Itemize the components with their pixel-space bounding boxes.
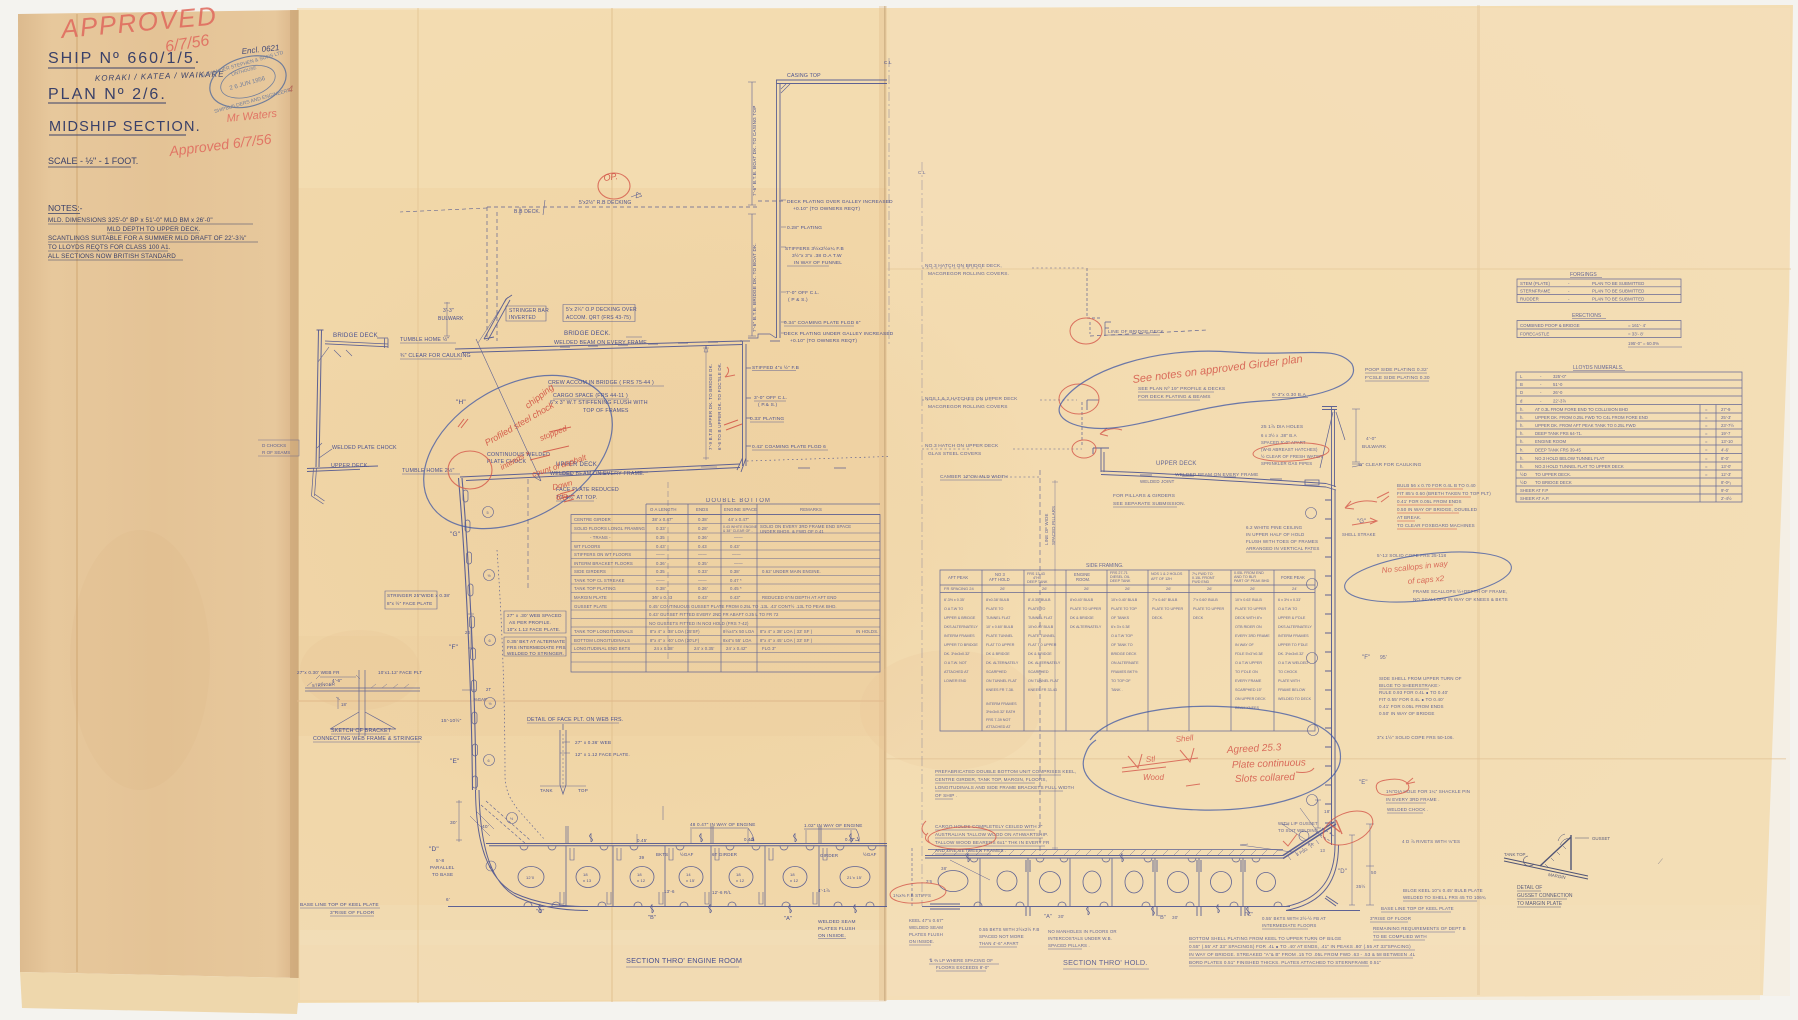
svg-text:SPRINKLER GAS PIPES: SPRINKLER GAS PIPES	[1261, 461, 1312, 466]
svg-text:NOS 1 & 2 HATCHES ON UPPER: NOS 1 & 2 HATCHES ON UPPER DECK	[925, 396, 1018, 402]
svg-text:SHELL STRAKE: SHELL STRAKE	[1342, 532, 1376, 537]
svg-text:GIRDER: GIRDER	[820, 853, 838, 858]
svg-text:4'-0": 4'-0"	[1366, 436, 1376, 442]
svg-text:½GAF: ½GAF	[863, 852, 877, 857]
svg-text:0.47': 0.47'	[845, 837, 855, 842]
svg-text:TOP OF FRAMES: TOP OF FRAMES	[583, 408, 629, 414]
svg-text:h.: h.	[1520, 464, 1524, 469]
svg-text:8"x 4" x .38' LOA (35'SF): 8"x 4" x .38' LOA (35'SF)	[650, 629, 700, 634]
svg-text:NOTES:-: NOTES:-	[48, 203, 83, 213]
svg-text:PLATE TUNNEL: PLATE TUNNEL	[986, 634, 1013, 638]
svg-text:REMARKS: REMARKS	[800, 507, 822, 512]
svg-text:10'x 0.40' BULB: 10'x 0.40' BULB	[1111, 598, 1138, 602]
svg-text:10'x1.12' FACE PLT: 10'x1.12' FACE PLT	[378, 670, 422, 675]
svg-text:h.: h.	[1520, 423, 1524, 428]
svg-text:TANK TOP CL STREAKE: TANK TOP CL STREAKE	[574, 578, 625, 583]
svg-text:EVERY 3RD FRAME: EVERY 3RD FRAME	[1235, 634, 1270, 638]
svg-text:UPPER & BRIDGE: UPPER & BRIDGE	[944, 616, 976, 620]
svg-text:TOP: TOP	[578, 788, 588, 793]
svg-text:DEEP TANK FRS 64-71.: DEEP TANK FRS 64-71.	[1535, 431, 1582, 436]
svg-text:18': 18'	[1324, 809, 1330, 814]
svg-text:6'.3½ x 0.35': 6'.3½ x 0.35'	[944, 598, 965, 602]
svg-text:DOUBLE BOTTOM: DOUBLE BOTTOM	[706, 498, 771, 504]
svg-text:BULWARK: BULWARK	[438, 316, 464, 322]
svg-text:CAMBER 12"ON MLD WIDTH: CAMBER 12"ON MLD WIDTH	[940, 474, 1008, 480]
svg-text:AT 0.3L FROM FORE END TO C: AT 0.3L FROM FORE END TO COLLISION BHD	[1535, 407, 1628, 412]
svg-text:0.55' BKTS WITH 2½-½ FB AT: 0.55' BKTS WITH 2½-½ FB AT	[1262, 916, 1326, 921]
svg-text:STIFFERS ON WT FLOORS: STIFFERS ON WT FLOORS	[574, 552, 631, 557]
svg-text:TO F'DLE ON: TO F'DLE ON	[1235, 670, 1258, 674]
svg-text:30': 30'	[450, 820, 457, 826]
svg-text:FLAT TO UPPER: FLAT TO UPPER	[1028, 643, 1057, 647]
svg-text:ENDS: ENDS	[696, 507, 708, 512]
svg-text:UNDER BHDS. & FWD OF 0.41: UNDER BHDS. & FWD OF 0.41	[760, 529, 824, 534]
svg-text:FLOORS EXCEEDS 8'-0": FLOORS EXCEEDS 8'-0"	[936, 965, 990, 970]
svg-text:MIDSHIP SECTION.: MIDSHIP SECTION.	[49, 119, 201, 135]
svg-text:SHEER AT A.P.: SHEER AT A.P.	[1520, 496, 1549, 501]
svg-text:+0.10" (TO OWNERS REQT): +0.10" (TO OWNERS REQT)	[793, 206, 860, 212]
svg-text:26': 26'	[1042, 586, 1047, 591]
svg-text:"F": "F"	[1362, 655, 1370, 661]
svg-text:8"x ½" FACE PLATE: 8"x ½" FACE PLATE	[387, 600, 432, 606]
svg-text:0.55" (.55' AT 33" SPACINGS): 0.55" (.55' AT 33" SPACINGS) FOR .4L ∎ T…	[1189, 944, 1411, 949]
svg-text:0.28': 0.28'	[698, 526, 708, 531]
svg-text:SHIP Nº 660/1/5.: SHIP Nº 660/1/5.	[48, 50, 201, 67]
svg-text:INVERTED: INVERTED	[509, 315, 536, 321]
svg-text:CONNECTING WEB FRAME & STRINGE: CONNECTING WEB FRAME & STRINGER	[313, 736, 422, 742]
svg-text:TANK .: TANK .	[1111, 688, 1123, 692]
svg-text:21'x 15': 21'x 15'	[847, 875, 862, 880]
svg-text:TANK: TANK	[540, 788, 553, 793]
svg-text:STIFFERS 3½x2½x¼ F.B: STIFFERS 3½x2½x¼ F.B	[785, 245, 844, 252]
svg-text:BASE LINE TOP OF KEEL PLATE: BASE LINE TOP OF KEEL PLATE	[1381, 906, 1454, 911]
svg-text:PLATE TO UPPER: PLATE TO UPPER	[1070, 607, 1101, 611]
svg-text:KNEES FR 33-43: KNEES FR 33-43	[1028, 688, 1057, 692]
svg-text:= 161'- 4': = 161'- 4'	[1628, 323, 1646, 328]
svg-text:CASING TOP: CASING TOP	[787, 73, 821, 79]
svg-text:24 x 0.38': 24 x 0.38'	[654, 646, 674, 651]
svg-text:FRS 7-39 NOT: FRS 7-39 NOT	[986, 718, 1011, 722]
svg-text:BORD PLATES 0.51" FINISHED: BORD PLATES 0.51" FINISHED THICKS. PLATE…	[1189, 960, 1381, 965]
svg-text:4: 4	[288, 84, 293, 94]
svg-text:18: 18	[583, 872, 588, 877]
svg-text:EVERY FRAME: EVERY FRAME	[1235, 679, 1262, 683]
svg-text:PLATE TO UPPER: PLATE TO UPPER	[1235, 607, 1266, 611]
svg-text:0.43' GUSSET FITTED EVERY: 0.43' GUSSET FITTED EVERY 2ND FR ABAFT 0…	[649, 612, 779, 617]
svg-text:½GAF: ½GAF	[680, 852, 694, 857]
svg-text:h.: h.	[1520, 448, 1524, 453]
svg-text:SPACED NOT MORE: SPACED NOT MORE	[979, 934, 1024, 939]
svg-text:WELDED SEAM: WELDED SEAM	[909, 925, 943, 930]
svg-text:WELDED BEAM ON EVERY FRAME: WELDED BEAM ON EVERY FRAME	[1175, 472, 1258, 478]
svg-text:0.41' FOR 0.05L FROM ENDS: 0.41' FOR 0.05L FROM ENDS	[1379, 704, 1444, 709]
svg-text:"E": "E"	[450, 758, 460, 765]
svg-text:BOTTOM SHELL PLATING FROM K: BOTTOM SHELL PLATING FROM KEEL TO UPPER …	[1189, 936, 1341, 941]
svg-text:NO SCALLOPS IN WAY OF KNEES &: NO SCALLOPS IN WAY OF KNEES & BKTS	[1413, 597, 1508, 602]
svg-text:O A T.W TO: O A T.W TO	[944, 607, 963, 611]
svg-text:WELDED BEAM ON EVERY FRAME: WELDED BEAM ON EVERY FRAME.	[554, 340, 649, 346]
svg-text:DECK PLATING UNDER GALLEY INCR: DECK PLATING UNDER GALLEY INCREASED	[784, 331, 894, 337]
svg-text:0.36': 0.36'	[656, 561, 666, 566]
svg-text:14: 14	[686, 872, 691, 877]
svg-text:GUSSET CONNECTION: GUSSET CONNECTION	[1517, 893, 1573, 899]
svg-text:C.L: C.L	[918, 170, 926, 175]
svg-text:5'x2½" R.B DECKING: 5'x2½" R.B DECKING	[579, 199, 631, 206]
svg-text:ON INSIDE.: ON INSIDE.	[909, 939, 934, 944]
svg-text:40': 40'	[482, 824, 489, 830]
svg-text:GUSSET PLATE: GUSSET PLATE	[574, 604, 607, 609]
svg-text:18: 18	[736, 872, 741, 877]
svg-text:REDUCED 6"IN DEPTH AT AFT EN: REDUCED 6"IN DEPTH AT AFT END	[762, 595, 837, 600]
svg-text:22'-3⅞: 22'-3⅞	[1553, 399, 1566, 404]
svg-text:0.40': 0.40'	[744, 837, 754, 842]
svg-text:26': 26'	[1125, 586, 1130, 591]
svg-text:= 33'- 8': = 33'- 8'	[1628, 332, 1644, 337]
svg-text:3"x 1½" SOLID COPE FRS 50-: 3"x 1½" SOLID COPE FRS 50-106.	[1377, 734, 1454, 740]
svg-text:8x4"x 55' LOA: 8x4"x 55' LOA	[723, 638, 752, 643]
svg-text:"A": "A"	[1044, 914, 1052, 920]
svg-text:DECK.: DECK.	[1152, 616, 1163, 620]
svg-text:30': 30'	[1172, 915, 1178, 920]
svg-text:6 x 3½ x .38" B.A: 6 x 3½ x .38" B.A	[1261, 433, 1297, 438]
svg-text:SEE PLAN Nº 19" PROFILE & DECK: SEE PLAN Nº 19" PROFILE & DECKS	[1138, 386, 1225, 392]
svg-text:——: ——	[698, 552, 707, 557]
svg-text:——: ——	[734, 535, 743, 540]
svg-text:O A LENGTH: O A LENGTH	[650, 507, 677, 512]
svg-text:PLATES FLUSH: PLATES FLUSH	[909, 932, 943, 937]
svg-text:TANK TOP PLATING: TANK TOP PLATING	[574, 586, 616, 591]
svg-text:INTERM BRACKET FLOORS: INTERM BRACKET FLOORS	[574, 561, 633, 566]
svg-text:8"x 4" x 45' LOA ( 33' SF ): 8"x 4" x 45' LOA ( 33' SF )	[760, 638, 813, 643]
svg-text:——: ——	[698, 578, 707, 583]
svg-text:STEM (PLATE): STEM (PLATE)	[1520, 281, 1550, 286]
svg-text:95': 95'	[1380, 655, 1387, 661]
svg-text:3"RISE OF FLOOR: 3"RISE OF FLOOR	[1370, 916, 1412, 921]
svg-text:6: 6	[488, 759, 490, 763]
svg-text:GLAS STEEL COVERS: GLAS STEEL COVERS	[928, 451, 981, 457]
svg-text:0.43': 0.43'	[656, 544, 666, 549]
svg-text:Wood: Wood	[1143, 773, 1164, 782]
svg-text:UPPER & F'DLE: UPPER & F'DLE	[1278, 616, 1306, 620]
svg-text:OF TANKS: OF TANKS	[1111, 616, 1130, 620]
svg-text:FRAME SCALLOPS ½+DEPTH OF FRA: FRAME SCALLOPS ½+DEPTH OF FRAME,	[1413, 588, 1507, 594]
svg-text:SCARPHED 15": SCARPHED 15"	[1235, 688, 1263, 692]
svg-text:IN HOLDS.: IN HOLDS.	[856, 629, 878, 634]
svg-text:0.62' UNDER MAIN ENGINE.: 0.62' UNDER MAIN ENGINE.	[762, 569, 821, 574]
svg-text:D CHOCKS: D CHOCKS	[262, 443, 286, 448]
svg-text:51'-0: 51'-0	[1553, 382, 1563, 387]
svg-text:+0.10" (TO OWNERS REQT): +0.10" (TO OWNERS REQT)	[790, 338, 857, 344]
svg-text:LINE OF WIDE: LINE OF WIDE	[1044, 513, 1049, 545]
svg-text:0.45 *: 0.45 *	[730, 586, 742, 591]
svg-text:SEE SEPARATE SUBMISSION.: SEE SEPARATE SUBMISSION.	[1113, 501, 1185, 507]
svg-text:& 38" CLEAR OF -: & 38" CLEAR OF -	[723, 529, 753, 533]
svg-text:12" x 1.12 FACE PLATE.: 12" x 1.12 FACE PLATE.	[575, 752, 630, 757]
svg-text:8½x4"x 50 LOA: 8½x4"x 50 LOA	[723, 629, 754, 634]
svg-text:0.43": 0.43"	[730, 595, 741, 600]
svg-text:"C": "C"	[1245, 912, 1253, 918]
svg-text:STIFFED 4"x ½" F.B: STIFFED 4"x ½" F.B	[752, 364, 799, 371]
svg-text:0.34" COAMING PLATE FLGD 6": 0.34" COAMING PLATE FLGD 6"	[784, 320, 861, 326]
svg-text:PLATE TO: PLATE TO	[1028, 607, 1046, 611]
svg-text:INTERMEDIATE FLOORS: INTERMEDIATE FLOORS	[1262, 923, 1316, 928]
svg-text:NO.3 HOLD BELOW TUNNEL FLAT: NO.3 HOLD BELOW TUNNEL FLAT	[1535, 456, 1605, 461]
svg-text:TO UPPER DECK.: TO UPPER DECK.	[1535, 472, 1571, 477]
svg-text:PLAN TO BE SUBMITTED: PLAN TO BE SUBMITTED	[1592, 289, 1644, 294]
svg-text:FORE PEAK: FORE PEAK	[1281, 575, 1305, 580]
svg-text:0.35': 0.35'	[698, 561, 708, 566]
svg-text:PLATE WITH: PLATE WITH	[1278, 679, 1300, 683]
svg-text:LONGITUDINALS AND SIDE FRAM: LONGITUDINALS AND SIDE FRAME BRACKETS FU…	[935, 785, 1074, 790]
svg-text:MARGIN PLATE: MARGIN PLATE	[574, 595, 607, 600]
svg-text:0.36': 0.36'	[698, 535, 708, 540]
svg-text:BULB 56 x 0.70 FOR 0.4L B TO: BULB 56 x 0.70 FOR 0.4L B TO 0.40	[1397, 483, 1476, 488]
svg-text:27" x .30' WEB SPACED: 27" x .30' WEB SPACED	[507, 613, 562, 618]
svg-text:LLOYDS NUMERALS.: LLOYDS NUMERALS.	[1573, 365, 1623, 371]
svg-text:x 12: x 12	[790, 878, 799, 883]
svg-text:AFT HOLD: AFT HOLD	[989, 577, 1010, 582]
svg-text:ARRANGED IN VERTICAL PATES: ARRANGED IN VERTICAL PATES	[1246, 546, 1320, 551]
svg-text:½D: ½D	[1520, 472, 1527, 477]
svg-text:——: ——	[732, 552, 741, 557]
svg-text:DEEP TANK FRS 39-45: DEEP TANK FRS 39-45	[1535, 448, 1581, 453]
svg-text:x 13: x 13	[583, 878, 592, 883]
svg-text:25'-3': 25'-3'	[1721, 415, 1731, 420]
svg-text:TO CHOCK: TO CHOCK	[1278, 670, 1298, 674]
svg-text:ATTACHED AT: ATTACHED AT	[944, 670, 969, 674]
svg-text:ON UPPER DECK: ON UPPER DECK	[1235, 697, 1266, 701]
svg-text:38' x 0.47": 38' x 0.47"	[652, 517, 673, 522]
svg-text:STRINGER BAR: STRINGER BAR	[509, 308, 549, 314]
svg-text:OF SHIP .: OF SHIP .	[935, 793, 957, 798]
svg-text:ACCOM. QRT (FRS 43-75): ACCOM. QRT (FRS 43-75)	[566, 315, 631, 321]
svg-text:IN WAY OF BRIDGE. STREAKED: IN WAY OF BRIDGE. STREAKED "A"& B" FROM …	[1189, 952, 1416, 957]
svg-text:THAN 4'-6" APART: THAN 4'-6" APART	[979, 941, 1019, 946]
svg-text:WELDED SEAM: WELDED SEAM	[818, 919, 856, 925]
svg-text:0.43': 0.43'	[730, 544, 740, 549]
svg-text:SCALE - ½" - 1 FOOT.: SCALE - ½" - 1 FOOT.	[48, 156, 138, 166]
svg-text:FORGINGS: FORGINGS	[1570, 272, 1597, 278]
svg-text:STRINGER 25"WIDE x 0.38': STRINGER 25"WIDE x 0.38'	[387, 593, 450, 598]
svg-text:KEEL 47"x 0.67": KEEL 47"x 0.67"	[909, 918, 944, 923]
svg-text:FOR DECK PLATING & BEAMS: FOR DECK PLATING & BEAMS	[1138, 394, 1211, 400]
svg-text:WELDED PLATE CHOCK: WELDED PLATE CHOCK	[332, 445, 397, 451]
svg-text:POOP SIDE PLATING 0.32': POOP SIDE PLATING 0.32'	[1365, 367, 1428, 373]
svg-text:IN EVERY 3RD FRAME .: IN EVERY 3RD FRAME .	[1386, 797, 1440, 802]
svg-text:DKS ALTERNATELY: DKS ALTERNATELY	[1278, 625, 1312, 629]
svg-text:5: 5	[487, 511, 489, 515]
svg-text:AFT OF 12H: AFT OF 12H	[1151, 577, 1172, 581]
svg-text:TO SUIT WELDING: TO SUIT WELDING	[1278, 828, 1319, 833]
svg-text:TO BASE: TO BASE	[432, 872, 453, 877]
svg-text:O A T.W TOP: O A T.W TOP	[1111, 634, 1133, 638]
svg-text:39: 39	[639, 855, 645, 860]
svg-text:CENTRE GIRDER: CENTRE GIRDER	[574, 517, 611, 522]
svg-text:"D": "D"	[429, 846, 439, 853]
svg-text:6T GIRDER: 6T GIRDER	[712, 852, 737, 857]
svg-text:0.42' COAMING PLATE FLGD 6: 0.42' COAMING PLATE FLGD 6	[752, 444, 826, 450]
svg-text:ON ALTERNATE: ON ALTERNATE	[1111, 661, 1139, 665]
svg-text:SCARPHED: SCARPHED	[1028, 670, 1049, 674]
svg-text:0.38': 0.38'	[656, 586, 666, 591]
svg-text:10'x0.40' BULB: 10'x0.40' BULB	[1028, 625, 1054, 629]
svg-text:O A T.W TO: O A T.W TO	[1278, 607, 1297, 611]
svg-text:"G": "G"	[450, 531, 461, 538]
svg-text:0.28" PLATING: 0.28" PLATING	[787, 225, 822, 231]
svg-text:8'x0.38' BULB: 8'x0.38' BULB	[986, 598, 1010, 602]
svg-text:5'-12 SOLID COPE FRS 25-11: 5'-12 SOLID COPE FRS 25-118	[1377, 553, 1446, 558]
svg-text:WELDED TO STRINGER.: WELDED TO STRINGER.	[507, 651, 564, 656]
svg-text:DETAIL OF: DETAIL OF	[1517, 885, 1542, 891]
svg-text:0.50 IN WAY OF BRIDGE, DOUBLE: 0.50 IN WAY OF BRIDGE, DOUBLED	[1397, 507, 1478, 512]
svg-text:7"x 0.60' BULB: 7"x 0.60' BULB	[1193, 598, 1218, 602]
svg-text:IN WAY OF FUNNEL: IN WAY OF FUNNEL	[794, 260, 842, 266]
svg-text:195'-0" = 60.0%: 195'-0" = 60.0%	[1628, 341, 1659, 346]
svg-text:35½: 35½	[1356, 883, 1365, 889]
svg-text:3½x3x0.32' EATH: 3½x3x0.32' EATH	[986, 710, 1016, 714]
svg-text:DKS ALTERNATELY: DKS ALTERNATELY	[944, 625, 978, 629]
svg-text:3'-0" OFF C.L.: 3'-0" OFF C.L.	[754, 395, 787, 401]
svg-text:Shell: Shell	[1175, 733, 1194, 744]
svg-text:FR SPACING 24: FR SPACING 24	[944, 586, 974, 591]
svg-text:DK. ALTERNATELY: DK. ALTERNATELY	[986, 661, 1019, 665]
svg-text:INTERM FRAMES: INTERM FRAMES	[1278, 634, 1309, 638]
svg-text:27" x 0.36' WEB: 27" x 0.36' WEB	[575, 740, 611, 745]
svg-text:6 x 3½ x 0.33': 6 x 3½ x 0.33'	[1278, 598, 1301, 602]
svg-text:PLAN TO BE SUBMITTED: PLAN TO BE SUBMITTED	[1592, 296, 1644, 301]
svg-text:LINE OF BRIDGE DECK: LINE OF BRIDGE DECK	[1108, 329, 1165, 335]
svg-text:R OF SEAMS: R OF SEAMS	[262, 450, 290, 455]
svg-text:ATTACHED AT: ATTACHED AT	[986, 725, 1011, 729]
svg-text:24' x 0.42": 24' x 0.42"	[726, 646, 747, 651]
svg-text:OP.: OP.	[603, 171, 619, 183]
svg-text:26'-0: 26'-0	[1553, 390, 1563, 395]
svg-text:13'-6: 13'-6	[664, 889, 675, 894]
svg-text:SECTION THRO' ENGINE ROOM: SECTION THRO' ENGINE ROOM	[626, 956, 742, 965]
svg-text:CARGO SPACE (FRS 44-11 ): CARGO SPACE (FRS 44-11 )	[553, 393, 628, 399]
svg-text:PLATE TO UPPER: PLATE TO UPPER	[1152, 607, 1183, 611]
svg-text:0.45': 0.45'	[637, 838, 647, 843]
svg-text:SIDE SHELL FROM UPPER TURN O: SIDE SHELL FROM UPPER TURN OF	[1379, 676, 1462, 681]
svg-text:AT BREAK.: AT BREAK.	[1397, 515, 1421, 520]
svg-text:0.33': 0.33'	[698, 569, 708, 574]
svg-text:h.: h.	[1520, 456, 1524, 461]
svg-text:18': 18'	[341, 702, 347, 707]
svg-text:0.35: 0.35	[656, 535, 665, 540]
svg-text:24: 24	[465, 630, 471, 635]
svg-text:38': 38'	[941, 866, 947, 871]
svg-text:8'-0.35' BULB: 8'-0.35' BULB	[1028, 598, 1051, 602]
svg-text:4 D ⅞ RIVETS WITH ⅛"ES: 4 D ⅞ RIVETS WITH ⅛"ES	[1402, 839, 1460, 844]
svg-text:48 0.47" IN WAY OF ENGINE: 48 0.47" IN WAY OF ENGINE	[690, 822, 756, 827]
svg-text:SIDE FRAMING.: SIDE FRAMING.	[1086, 563, 1124, 569]
svg-text:26': 26'	[1166, 586, 1171, 591]
svg-text:8'x0.40' BULB: 8'x0.40' BULB	[1070, 598, 1094, 602]
svg-text:MLD. DIMENSIONS 325'-0" BP x 5: MLD. DIMENSIONS 325'-0" BP x 51'-0" MLD …	[48, 217, 213, 224]
svg-text:50: 50	[1371, 870, 1377, 875]
svg-text:h.: h.	[1520, 431, 1524, 436]
svg-text:BILGE KEEL 10"x 0.45' BULB PL: BILGE KEEL 10"x 0.45' BULB PLATE	[1403, 888, 1483, 893]
svg-text:TANK TOP: TANK TOP	[1504, 852, 1526, 857]
svg-text:26': 26'	[1000, 586, 1005, 591]
svg-text:DK & BRIDGE: DK & BRIDGE	[1028, 652, 1052, 656]
svg-text:"D": "D"	[1338, 869, 1347, 875]
svg-text:PLATE TO TOP: PLATE TO TOP	[1111, 607, 1137, 611]
svg-text:AFT PEAK: AFT PEAK	[948, 575, 968, 580]
svg-text:13: 13	[1320, 848, 1325, 853]
svg-text:FOR PILLARS & GIRDERS: FOR PILLARS & GIRDERS	[1113, 493, 1175, 499]
svg-text:LOWER END: LOWER END	[944, 679, 967, 683]
svg-text:SHEER AT F.P: SHEER AT F.P	[1520, 488, 1548, 493]
svg-text:8"x 4" x .40' LOA (30'LF): 8"x 4" x .40' LOA (30'LF)	[650, 638, 700, 643]
svg-text:26': 26'	[1207, 586, 1212, 591]
svg-text:TO MARGIN PLATE: TO MARGIN PLATE	[1517, 901, 1563, 907]
svg-text:FR: FR	[1308, 842, 1314, 847]
svg-text:AUSTRALIAN TALLOW WOOD ON: AUSTRALIAN TALLOW WOOD ON ATHWARTSHIP.	[935, 832, 1048, 837]
svg-text:RULE 0.93 FOR 0.4L ∎ TO 0.4: RULE 0.93 FOR 0.4L ∎ TO 0.40'	[1379, 690, 1448, 695]
svg-text:0.35: 0.35	[656, 569, 665, 574]
svg-text:½D: ½D	[1520, 480, 1527, 485]
svg-text:10"x 1.12 FACE PLATE.: 10"x 1.12 FACE PLATE.	[507, 627, 561, 632]
svg-text:6.2 WHITE PINE CEILING: 6.2 WHITE PINE CEILING	[1246, 525, 1303, 530]
svg-text:WELDED BEAM ON EVERY FRAME: WELDED BEAM ON EVERY FRAME.	[550, 471, 645, 477]
svg-text:PLAN TO BE SUBMITTED: PLAN TO BE SUBMITTED	[1592, 281, 1644, 286]
svg-text:0.45' CONTINUOUS GUSSET PLA: 0.45' CONTINUOUS GUSSET PLATE FROM 0.25L…	[649, 604, 837, 609]
svg-text:18: 18	[637, 872, 642, 877]
svg-text:BRIDGE DECK: BRIDGE DECK	[333, 332, 379, 339]
svg-text:SECTION THRO' HOLD.: SECTION THRO' HOLD.	[1063, 958, 1148, 967]
svg-text:12'0: 12'0	[526, 875, 535, 880]
svg-text:ENGINE SPACE: ENGINE SPACE	[724, 507, 757, 512]
svg-text:ROOM.: ROOM.	[1076, 577, 1090, 582]
svg-text:24': 24'	[1292, 586, 1297, 591]
svg-text:5'-8: 5'-8	[436, 858, 445, 863]
svg-text:19'-7: 19'-7	[1721, 431, 1731, 436]
svg-text:5'x 2¼" O.P DECKING OVER: 5'x 2¼" O.P DECKING OVER	[566, 307, 637, 313]
svg-text:25 1⅞ DIA HOLES: 25 1⅞ DIA HOLES	[1261, 424, 1303, 430]
svg-text:3"RISE OF FLOOR: 3"RISE OF FLOOR	[330, 910, 375, 916]
svg-text:DECK: DECK	[1193, 616, 1204, 620]
svg-text:h.: h.	[1520, 415, 1524, 420]
svg-text:⇅ ⅔ LP WHERE SPACING OF: ⇅ ⅔ LP WHERE SPACING OF	[929, 958, 993, 963]
svg-text:30': 30'	[1058, 914, 1064, 919]
svg-text:NO GUSSETS FITTED IN NO3 HO: NO GUSSETS FITTED IN NO3 HOLD (FRS 7-42)	[649, 621, 749, 626]
svg-text:6': 6'	[446, 897, 450, 902]
svg-text:Slots collared: Slots collared	[1235, 772, 1296, 785]
svg-text:BULWARK: BULWARK	[1362, 444, 1387, 450]
svg-text:FLAT TO UPPER: FLAT TO UPPER	[986, 643, 1015, 647]
svg-text:1¾x⅜ F.B STIFFS: 1¾x⅜ F.B STIFFS	[893, 893, 931, 898]
svg-text:Stl: Stl	[1146, 754, 1156, 764]
svg-text:0.41' FOR 0.05L FROM ENDS: 0.41' FOR 0.05L FROM ENDS	[1397, 499, 1462, 504]
svg-text:TUNNEL FLAT: TUNNEL FLAT	[986, 616, 1011, 620]
svg-text:IN WAY OF: IN WAY OF	[1235, 643, 1255, 647]
svg-text:¾" CLEAR FOR CAULKING: ¾" CLEAR FOR CAULKING	[1358, 462, 1422, 468]
svg-text:ALL SECTIONS NOW BRITISH STAND: ALL SECTIONS NOW BRITISH STANDARD	[48, 253, 176, 260]
svg-text:O A T.W UPPER: O A T.W UPPER	[1235, 661, 1262, 665]
svg-text:23'-7½: 23'-7½	[1721, 423, 1734, 428]
svg-text:MLD DEPTH TO UPPER DECK.: MLD DEPTH TO UPPER DECK.	[107, 226, 201, 233]
svg-text:7'-6" B.T.B. BRIDGE DK. TO BOA: 7'-6" B.T.B. BRIDGE DK. TO BOAT DK.	[752, 243, 757, 332]
svg-text:PARALLEL: PARALLEL	[430, 865, 455, 870]
svg-text:NO.3 HOLD TUNNEL FLAT TO UPPE: NO.3 HOLD TUNNEL FLAT TO UPPER DECK	[1535, 464, 1624, 469]
svg-text:GUSSET: GUSSET	[1592, 836, 1610, 841]
svg-text:DEEP TANK: DEEP TANK	[1110, 579, 1131, 583]
svg-text:27'-9: 27'-9	[1721, 407, 1731, 412]
svg-text:FIT 0.55' FOR 0.4L ∎ TO 0.: FIT 0.55' FOR 0.4L ∎ TO 0.40'	[1379, 697, 1444, 702]
svg-text:FDLE 5'x3"x0.38': FDLE 5'x3"x0.38'	[1235, 652, 1263, 656]
svg-text:ERECTIONS: ERECTIONS	[1572, 313, 1602, 319]
